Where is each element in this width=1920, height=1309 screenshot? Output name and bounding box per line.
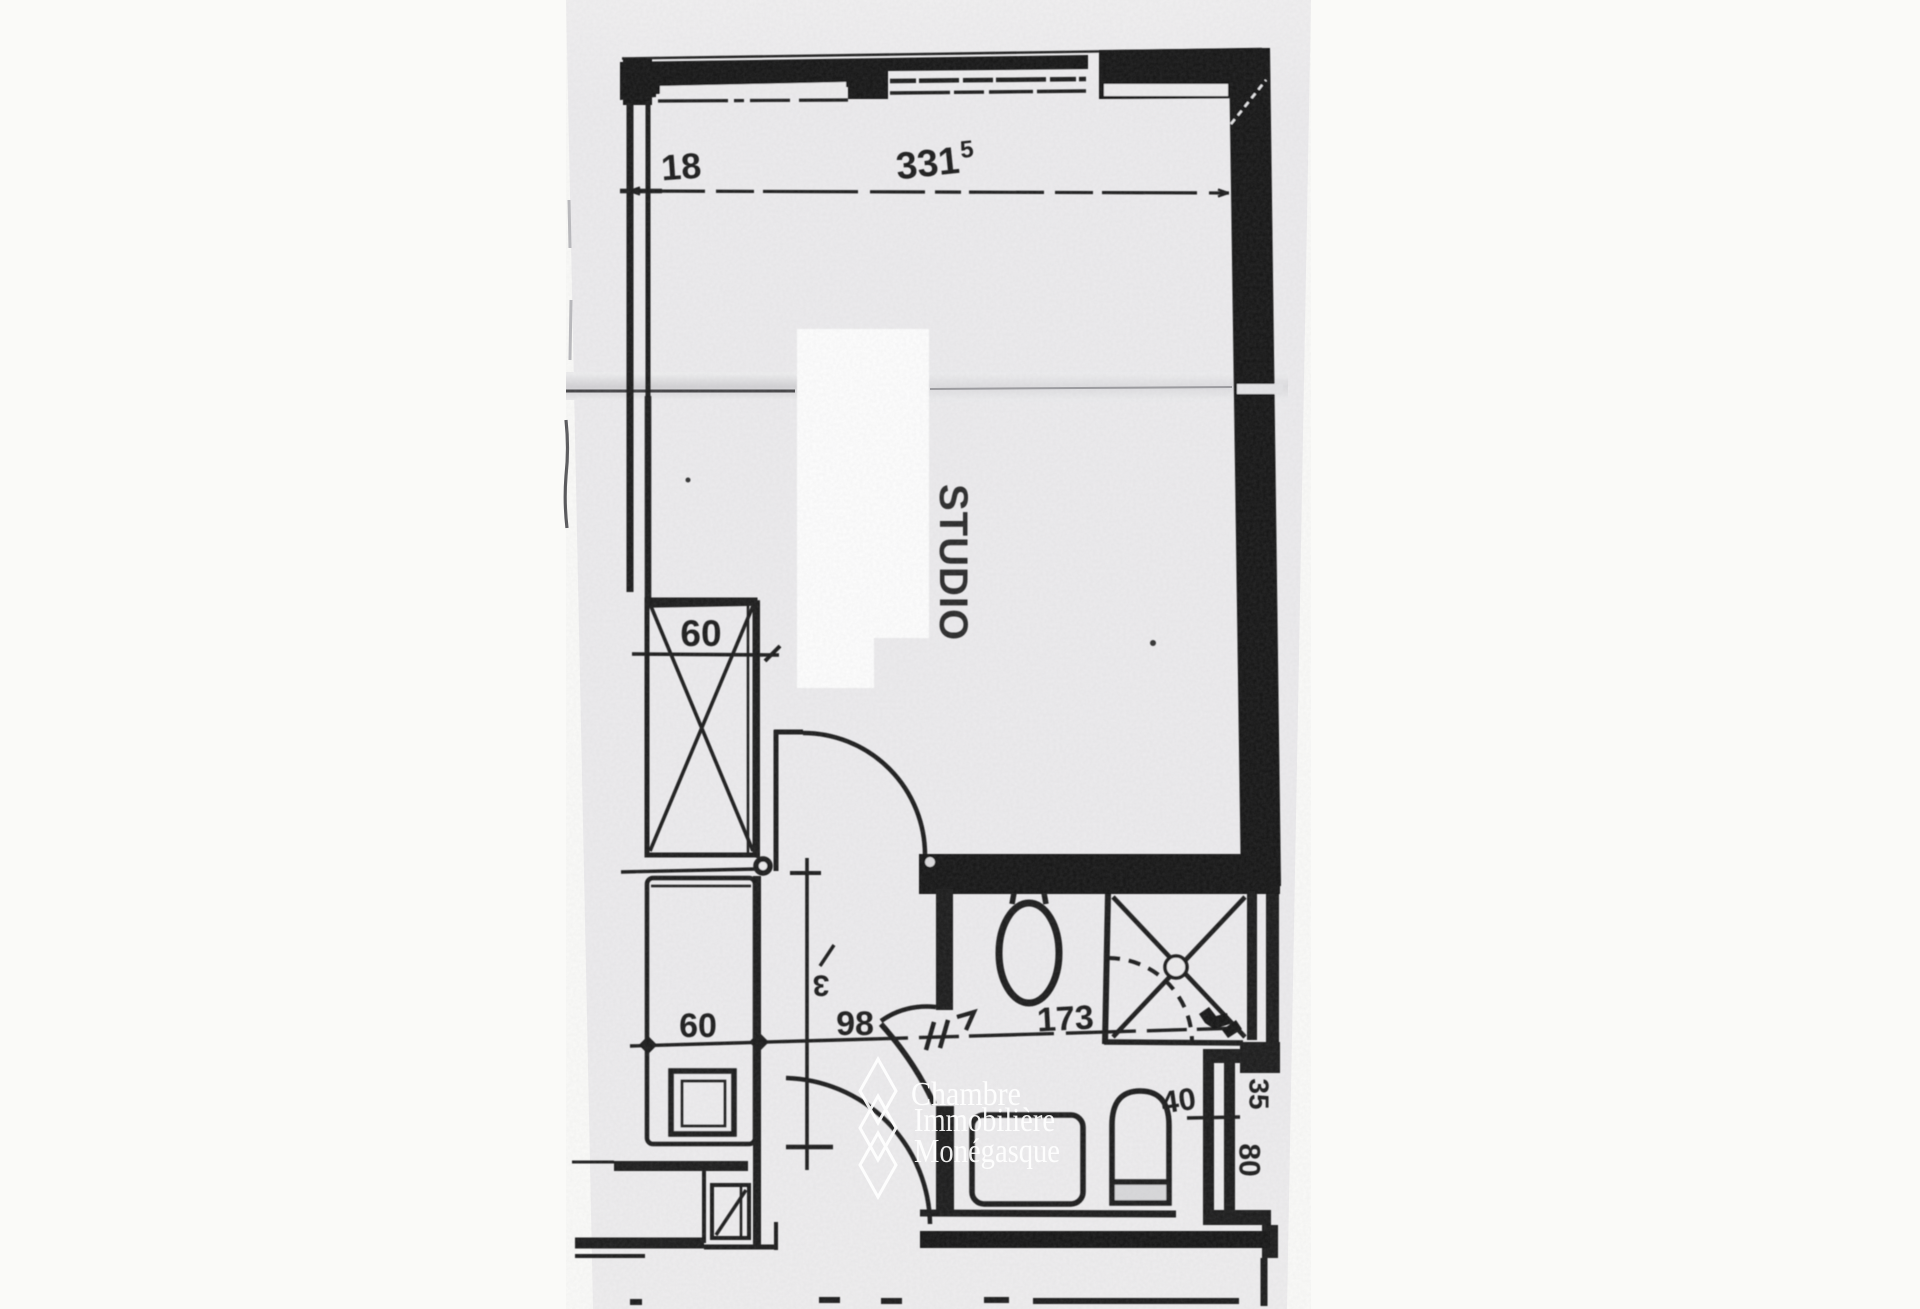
svg-text:Monégasque: Monégasque bbox=[914, 1133, 1060, 1170]
